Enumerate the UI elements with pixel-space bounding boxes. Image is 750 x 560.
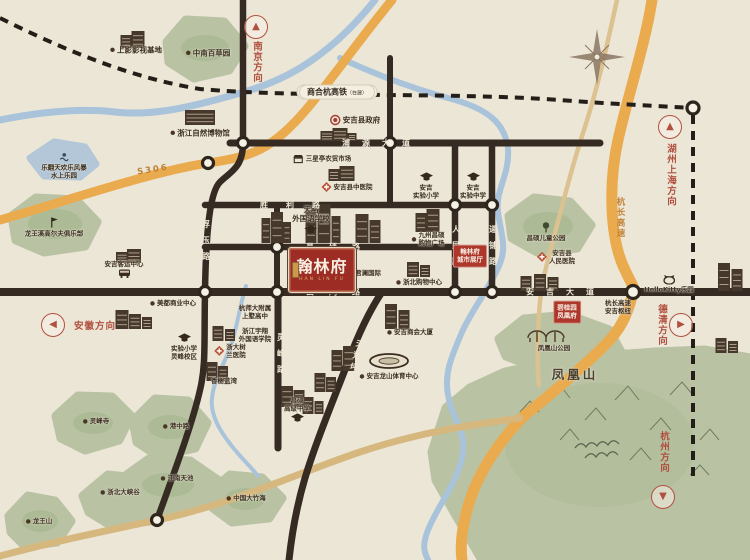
sanxingting-market-label: 三星亭农贸市场 (293, 155, 352, 164)
railway-status: （在建） (347, 91, 367, 97)
school-icon (467, 172, 480, 182)
kitty-icon (663, 274, 675, 284)
junlan-international-label: 君澜国际 (355, 269, 381, 277)
tianhuangping-lu-road-label: 天荒坪路 (344, 338, 366, 387)
meidu-business-center-text: 美都商业中心 (157, 299, 196, 307)
china-bamboo-sea-text: 中国大竹海 (233, 494, 266, 502)
water-park-text: 乐翻天欢乐风暴 水上乐园 (41, 163, 87, 179)
jiangnan-tianchi-text: 江南天池 (168, 474, 194, 482)
zhebei-shopping-center-text: 浙北购物中心 (403, 278, 442, 286)
zhebei-grand-canyon-text: 浙北大峡谷 (107, 488, 140, 496)
water-park-label: 乐翻天欢乐风暴 水上乐园 (41, 152, 87, 179)
anji-peoples-hospital-text: 安吉县 人民医院 (549, 249, 575, 265)
anji-peoples-hospital-label: 安吉县 人民医院 (537, 249, 575, 265)
gov-icon (330, 115, 341, 126)
shangying-film-base-label: 上影影视基地 (110, 45, 162, 54)
china-bamboo-sea-label: 中国大竹海 (226, 494, 266, 502)
changshuo-children-park-label: 昌硕儿童公园 (527, 222, 566, 242)
golf-icon (49, 216, 59, 228)
zhebei-grand-canyon-label: 浙北大峡谷 (100, 488, 140, 496)
anji-exp-primary-label: 安吉 实验小学 (413, 172, 439, 199)
dot-icon (150, 301, 155, 306)
down-arrow-icon: ▼ (659, 492, 667, 502)
hospital-icon (537, 252, 547, 262)
puyuan-dadao-road-label: 浦源大道 (342, 138, 422, 149)
zhongnan-baicaoyuan-text: 中南百草园 (193, 48, 231, 57)
lingfeng-lu-road-label: 灵峰路 (276, 333, 287, 381)
changshuo-senior-high-label: 昌硕 高级中学 (284, 396, 310, 423)
dot-icon (170, 131, 175, 136)
anji-exp-middle-label: 安吉 实验中学 (460, 172, 486, 199)
anji-bus-terminal-label: 安吉客运中心 (105, 260, 144, 278)
hangzhou-direction-label: 杭州方向 (656, 431, 670, 473)
zheda-shulan-hospital-label: 浙大树 兰医院 (214, 343, 246, 359)
dipu-lu-road-label: 递铺路 (488, 225, 499, 273)
school-icon (291, 414, 304, 424)
hangshida-shangshu-high-label: 杭师大附属 上墅高中 (239, 304, 272, 320)
meidu-business-center-label: 美都商业中心 (150, 299, 196, 307)
lingfeng-temple-label: 灵峰寺 (83, 417, 110, 425)
zhejiang-natural-museum-label: 浙江自然博物馆 (170, 128, 230, 137)
school-icon (305, 225, 318, 235)
anji-dadao-road-label: 安吉大道 (526, 287, 606, 298)
anji-exp-primary-text: 安吉 实验小学 (413, 183, 439, 199)
anji-location-map: 上影影视基地中南百草园浙江自然博物馆乐翻天欢乐风暴 水上乐园龙王溪高尔夫俱乐部安… (0, 0, 750, 560)
anji-county-government-text: 安吉县政府 (343, 115, 381, 124)
xiangxie-lanwan-label: 香榭蓝湾 (211, 377, 237, 385)
longshan-sports-center-text: 安吉龙山体育中心 (367, 372, 419, 380)
gangzhong-lu-hill-text: 港中路 (170, 422, 190, 430)
park-icon (542, 222, 551, 233)
yuxiang-college-label: 浙江宇翔 外国语学院 (239, 327, 272, 343)
zheda-shulan-hospital-text: 浙大树 兰医院 (226, 343, 246, 359)
dot-icon (163, 424, 168, 429)
lingfeng-temple-text: 灵峰寺 (90, 417, 110, 425)
swim-icon (59, 152, 69, 162)
project-badge: 翰林府 HAN LIN FU (288, 247, 356, 293)
dot-icon (360, 374, 365, 379)
longwangshan-text: 龙王山 (33, 517, 53, 525)
exp-primary-lingfeng-label: 实验小学 灵峰校区 (171, 333, 197, 360)
hangzhou-direction-marker: ▼ (651, 485, 675, 509)
anhui-direction-label: 安徽方向 (74, 318, 116, 332)
yuxiang-college-text: 浙江宇翔 外国语学院 (239, 327, 272, 343)
hangchang-anji-hub-text: 杭长高速 安吉枢纽 (605, 299, 631, 315)
dot-icon (387, 330, 392, 335)
market-icon (293, 155, 304, 164)
dot-icon (396, 280, 401, 285)
hellokitty-park-text: HelloKitty乐园 (644, 285, 694, 293)
fenghuangshan-park-text: 凤凰山公园 (538, 344, 571, 352)
map-labels-layer: 上影影视基地中南百草园浙江自然博物馆乐翻天欢乐风暴 水上乐园龙王溪高尔夫俱乐部安… (0, 0, 750, 560)
hangchang-anji-hub-label: 杭长高速 安吉枢纽 (605, 299, 631, 315)
left-arrow-icon: ◀ (49, 320, 57, 330)
hospital-icon (322, 182, 332, 192)
project-name: 翰林府 (296, 259, 347, 275)
jiuzhou-changshuo-mall-text: 九州昌硕 购物广场 (419, 231, 445, 247)
changshuo-children-park-text: 昌硕儿童公园 (527, 234, 566, 242)
hangchang-expwy-label: 杭长高速 (614, 197, 626, 239)
badge-seal-icon (292, 262, 299, 278)
nanjing-direction-marker: ▲ (244, 15, 268, 39)
shengli-lu-road-label: 胜利路 (260, 200, 338, 211)
bus-icon (118, 269, 130, 278)
anji-chamber-building-text: 安吉商会大厦 (394, 328, 433, 336)
right-arrow-icon: ▶ (677, 320, 685, 330)
anji-bus-terminal-text: 安吉客运中心 (105, 260, 144, 268)
zhebei-shopping-center-label: 浙北购物中心 (396, 278, 442, 286)
dot-icon (161, 476, 166, 481)
gangzhong-lu-hill-label: 港中路 (163, 422, 190, 430)
dot-icon (412, 237, 417, 242)
dot-icon (100, 490, 105, 495)
sanxingting-market-text: 三星亭农贸市场 (306, 155, 352, 163)
fenghuangshan-label: 凤凰山 (552, 367, 599, 383)
jiuzhou-changshuo-mall-label: 九州昌硕 购物广场 (412, 231, 445, 247)
hanlinfu-city-hall-label: 翰林府 城市展厅 (453, 245, 487, 268)
up-arrow-icon: ▲ (666, 122, 674, 132)
longwangshan-label: 龙王山 (26, 517, 53, 525)
up-arrow-icon: ▲ (252, 22, 260, 32)
nanjing-direction-label: 南京方向 (249, 41, 263, 83)
dot-icon (226, 496, 231, 501)
school-icon (420, 172, 433, 182)
dot-icon (186, 51, 191, 56)
hospital-icon (214, 346, 224, 356)
jiangnan-tianchi-label: 江南天池 (161, 474, 194, 482)
longwangxi-golf-club-text: 龙王溪高尔夫俱乐部 (25, 229, 84, 237)
railway-label: 商合杭高铁（在建） (299, 85, 375, 100)
railway-name: 商合杭高铁 (307, 88, 347, 97)
longwangxi-golf-club-label: 龙王溪高尔夫俱乐部 (25, 216, 84, 237)
anji-tcm-hospital-text: 安吉县中医院 (334, 183, 373, 191)
fuyu-lu-road-label: 浮玉路 (201, 220, 212, 268)
anji-exp-middle-text: 安吉 实验中学 (460, 183, 486, 199)
deqing-direction-label: 德清方向 (654, 304, 668, 346)
fenghuangshan-park-label: 凤凰山公园 (538, 344, 571, 352)
dot-icon (83, 419, 88, 424)
anji-tcm-hospital-label: 安吉县中医院 (322, 182, 373, 192)
fenghuangshan-text: 凤凰山 (552, 367, 599, 383)
school-icon (178, 333, 191, 343)
dot-icon (110, 48, 115, 53)
xiangxie-lanwan-text: 香榭蓝湾 (211, 377, 237, 385)
biguiyuan-fenghuangfu-label: 碧桂园 凤凰府 (553, 301, 581, 324)
anji-chamber-building-label: 安吉商会大厦 (387, 328, 433, 336)
zhejiang-natural-museum-text: 浙江自然博物馆 (177, 128, 230, 137)
anhui-direction-marker: ◀ (41, 313, 65, 337)
shangying-film-base-text: 上影影视基地 (117, 45, 162, 54)
anji-county-government-label: 安吉县政府 (330, 115, 381, 126)
hellokitty-park-label: HelloKitty乐园 (644, 274, 694, 293)
huzhou-shanghai-direction-label: 湖州上海方向 (663, 144, 677, 207)
longshan-sports-center-label: 安吉龙山体育中心 (360, 372, 419, 380)
project-name-pinyin: HAN LIN FU (299, 277, 345, 282)
changshuo-senior-high-text: 昌硕 高级中学 (284, 396, 310, 412)
dot-icon (26, 519, 31, 524)
zhongnan-baicaoyuan-label: 中南百草园 (186, 48, 231, 57)
hangshida-shangshu-high-text: 杭师大附属 上墅高中 (239, 304, 272, 320)
huzhou-shanghai-direction-marker: ▲ (658, 115, 682, 139)
junlan-international-text: 君澜国际 (355, 269, 381, 277)
s306-label: S306 (136, 163, 169, 178)
exp-primary-lingfeng-text: 实验小学 灵峰校区 (171, 344, 197, 360)
deqing-direction-marker: ▶ (669, 313, 693, 337)
